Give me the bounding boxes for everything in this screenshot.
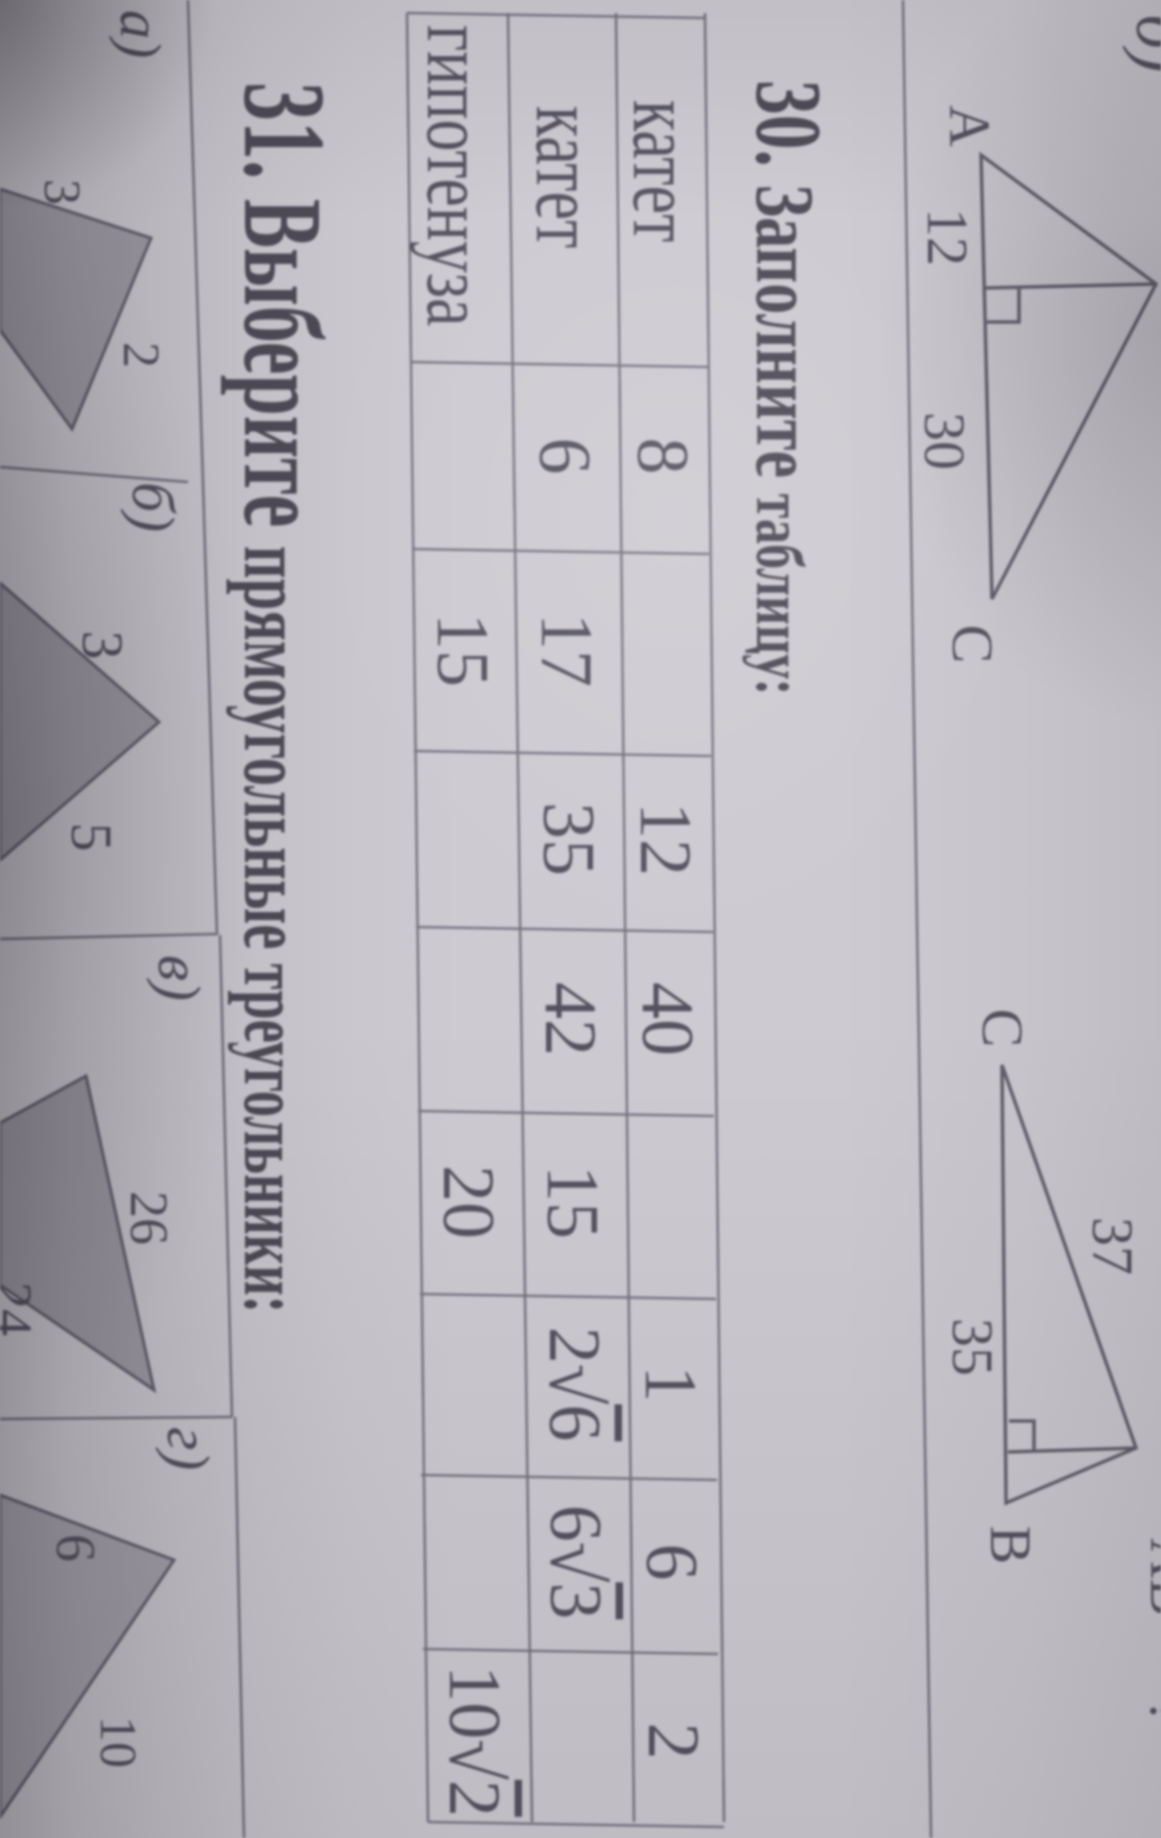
svg-text:2√6: 2√6 xyxy=(533,1327,615,1442)
svg-text:A: A xyxy=(937,105,1002,147)
svg-text:42: 42 xyxy=(529,982,611,1056)
svg-text:C: C xyxy=(940,625,1005,664)
svg-text:3: 3 xyxy=(33,179,90,205)
svg-text:40: 40 xyxy=(626,982,708,1056)
svg-text:12: 12 xyxy=(915,208,980,266)
svg-text:6: 6 xyxy=(630,1544,712,1581)
svg-text:35: 35 xyxy=(527,802,609,876)
svg-text:30: 30 xyxy=(912,412,977,470)
svg-text:31. Выберите прямоугольные тре: 31. Выберите прямоугольные треугольники: xyxy=(219,82,350,1313)
svg-text:6: 6 xyxy=(523,438,605,475)
svg-text:12: 12 xyxy=(624,802,706,876)
svg-text:3: 3 xyxy=(70,631,135,660)
svg-text:37: 37 xyxy=(1080,1217,1145,1275)
svg-text:26: 26 xyxy=(119,1191,179,1245)
svg-text:б): б) xyxy=(1121,14,1161,73)
svg-text:30. Заполните таблицу:: 30. Заполните таблицу: xyxy=(737,80,842,695)
svg-text:1: 1 xyxy=(629,1366,711,1403)
svg-text:8: 8 xyxy=(621,438,703,475)
svg-text:15: 15 xyxy=(531,1165,613,1239)
svg-text:15: 15 xyxy=(421,613,503,687)
svg-text:гипотенуза: гипотенуза xyxy=(409,25,501,326)
svg-text:24: 24 xyxy=(0,1282,43,1336)
svg-text:6√3: 6√3 xyxy=(534,1505,616,1620)
svg-text:б): б) xyxy=(120,482,186,532)
svg-text:20: 20 xyxy=(427,1165,509,1239)
svg-text:10√2: 10√2 xyxy=(433,1665,515,1817)
svg-text:17: 17 xyxy=(525,613,607,687)
svg-text:B: B xyxy=(978,1526,1043,1565)
svg-text:C: C xyxy=(970,1009,1035,1048)
svg-text:г): г) xyxy=(155,1427,221,1470)
svg-text:35: 35 xyxy=(940,1318,1005,1376)
svg-text:2: 2 xyxy=(112,342,169,368)
svg-text:6: 6 xyxy=(44,1534,106,1562)
svg-text:катет: катет xyxy=(615,100,710,242)
svg-text:5: 5 xyxy=(59,823,124,852)
svg-text:10: 10 xyxy=(89,1716,146,1768)
svg-text:а): а) xyxy=(108,10,173,58)
svg-text:2: 2 xyxy=(632,1723,714,1760)
svg-text:катет: катет xyxy=(518,106,613,248)
svg-text:в): в) xyxy=(146,955,212,1001)
svg-text:АВ — ?: АВ — ? xyxy=(1138,1538,1161,1725)
